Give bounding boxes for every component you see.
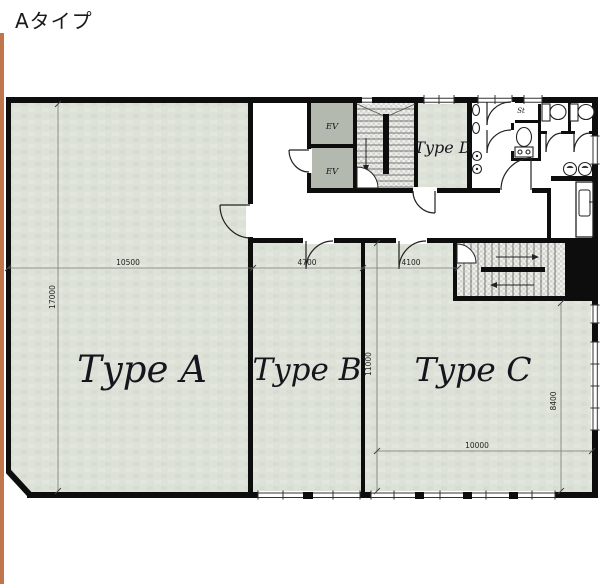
- dim-c-entry: 4100: [401, 258, 420, 267]
- toilet-icon: [515, 128, 533, 158]
- type-a-label: Type A: [77, 348, 207, 391]
- dim-b-width: 4700: [297, 258, 316, 267]
- dim-a-width: 10500: [116, 258, 140, 267]
- type-b-label: Type B: [252, 352, 361, 388]
- urinal-icon: [473, 123, 480, 134]
- stall-door-2: [574, 133, 590, 152]
- toilet-room-door: [487, 130, 511, 153]
- urinal-icon: [473, 105, 480, 116]
- stall-door-1: [546, 133, 562, 152]
- dim-a-height: 17000: [48, 285, 57, 309]
- type-d-door: [413, 191, 435, 213]
- elevator-2-label: EV: [325, 167, 339, 177]
- dim-bc-height: 11000: [364, 352, 373, 376]
- toilet-icon: [570, 104, 594, 121]
- dim-c-width: 10000: [465, 441, 489, 450]
- floor-plan-page: Aタイプ: [0, 0, 600, 584]
- storage-door: [487, 102, 511, 125]
- kitchen-counter: [576, 182, 593, 237]
- type-c-label: Type C: [414, 350, 531, 389]
- washroom-entry-door: [501, 158, 531, 190]
- dim-c-height: 8400: [549, 391, 558, 410]
- wash-basin-icon: [579, 163, 592, 176]
- wash-basin-icon: [564, 163, 577, 176]
- type-d-label: Type D: [414, 138, 472, 157]
- toilet-icon: [542, 104, 566, 121]
- fixtures: [473, 104, 595, 237]
- floor-plan-drawing: Type A Type B Type C Type D EV EV St 105…: [0, 0, 600, 584]
- shaft-void: [565, 243, 594, 298]
- storage-label: St: [517, 107, 525, 115]
- elevator-1-label: EV: [325, 122, 339, 132]
- type-a-room: [8, 100, 250, 494]
